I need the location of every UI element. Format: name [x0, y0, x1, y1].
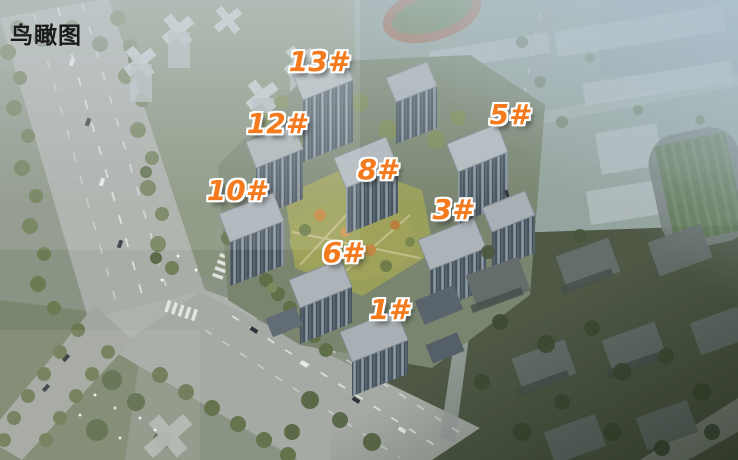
building-label-13: 13# [289, 48, 347, 76]
building-label-12: 12# [247, 110, 305, 138]
haze-overlays [0, 0, 738, 460]
view-title: 鸟瞰图 [10, 16, 82, 50]
building-label-5: 5# [490, 101, 529, 129]
birdseye-rendering: 鸟瞰图 13# 12# 10# 8# 5# 3# 6# 1# [0, 0, 738, 460]
building-label-8: 8# [358, 156, 397, 184]
building-label-1: 1# [370, 296, 409, 324]
building-label-10: 10# [207, 177, 265, 205]
building-label-6: 6# [323, 239, 362, 267]
building-label-3: 3# [433, 196, 472, 224]
aerial-scene [0, 0, 738, 460]
